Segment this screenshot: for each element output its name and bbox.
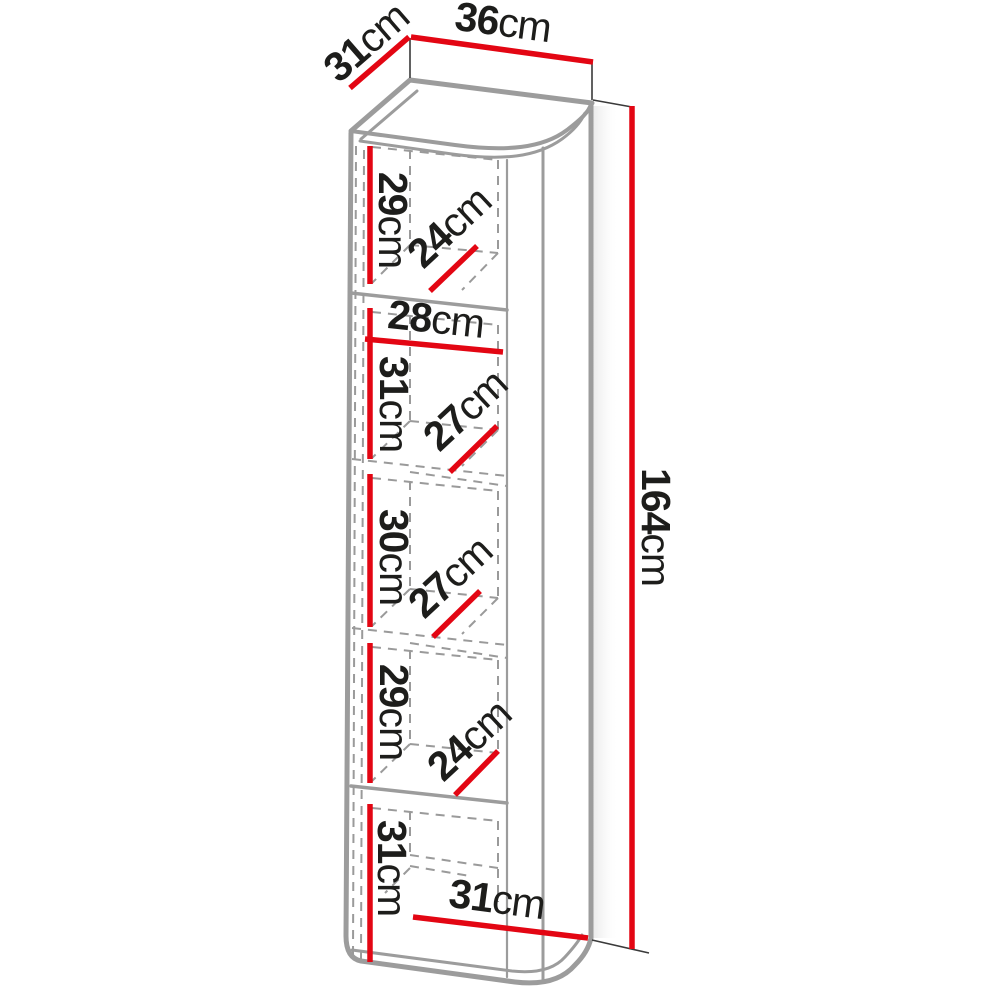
dimension-diagram: 31cm 36cm 164cm 29cm 24cm 28cm 31cm 27cm… — [0, 0, 1000, 1000]
label-c2-height: 31cm — [371, 356, 417, 452]
label-c5-height: 31cm — [369, 820, 415, 916]
top-panel-back-left-edges — [351, 80, 592, 131]
label-c4-height: 29cm — [371, 664, 417, 760]
label-inner-width: 28cm — [386, 291, 487, 347]
top-panel-front-edge-rounded — [351, 104, 591, 148]
cabinet-drawing: 31cm 36cm 164cm 29cm 24cm 28cm 31cm 27cm… — [0, 0, 1000, 1000]
label-height: 164cm — [633, 468, 679, 586]
left-panel-hidden-edges — [353, 146, 364, 960]
side-shadow — [593, 106, 619, 938]
shelf-4-front-edge — [351, 786, 507, 803]
label-bottom-depth: 31cm — [446, 870, 547, 928]
label-c4-depth: 24cm — [418, 690, 520, 789]
shelf-3-hidden-edge — [352, 628, 507, 658]
shelf-2-hidden-edge — [352, 459, 507, 486]
label-c2-depth: 27cm — [414, 360, 516, 459]
